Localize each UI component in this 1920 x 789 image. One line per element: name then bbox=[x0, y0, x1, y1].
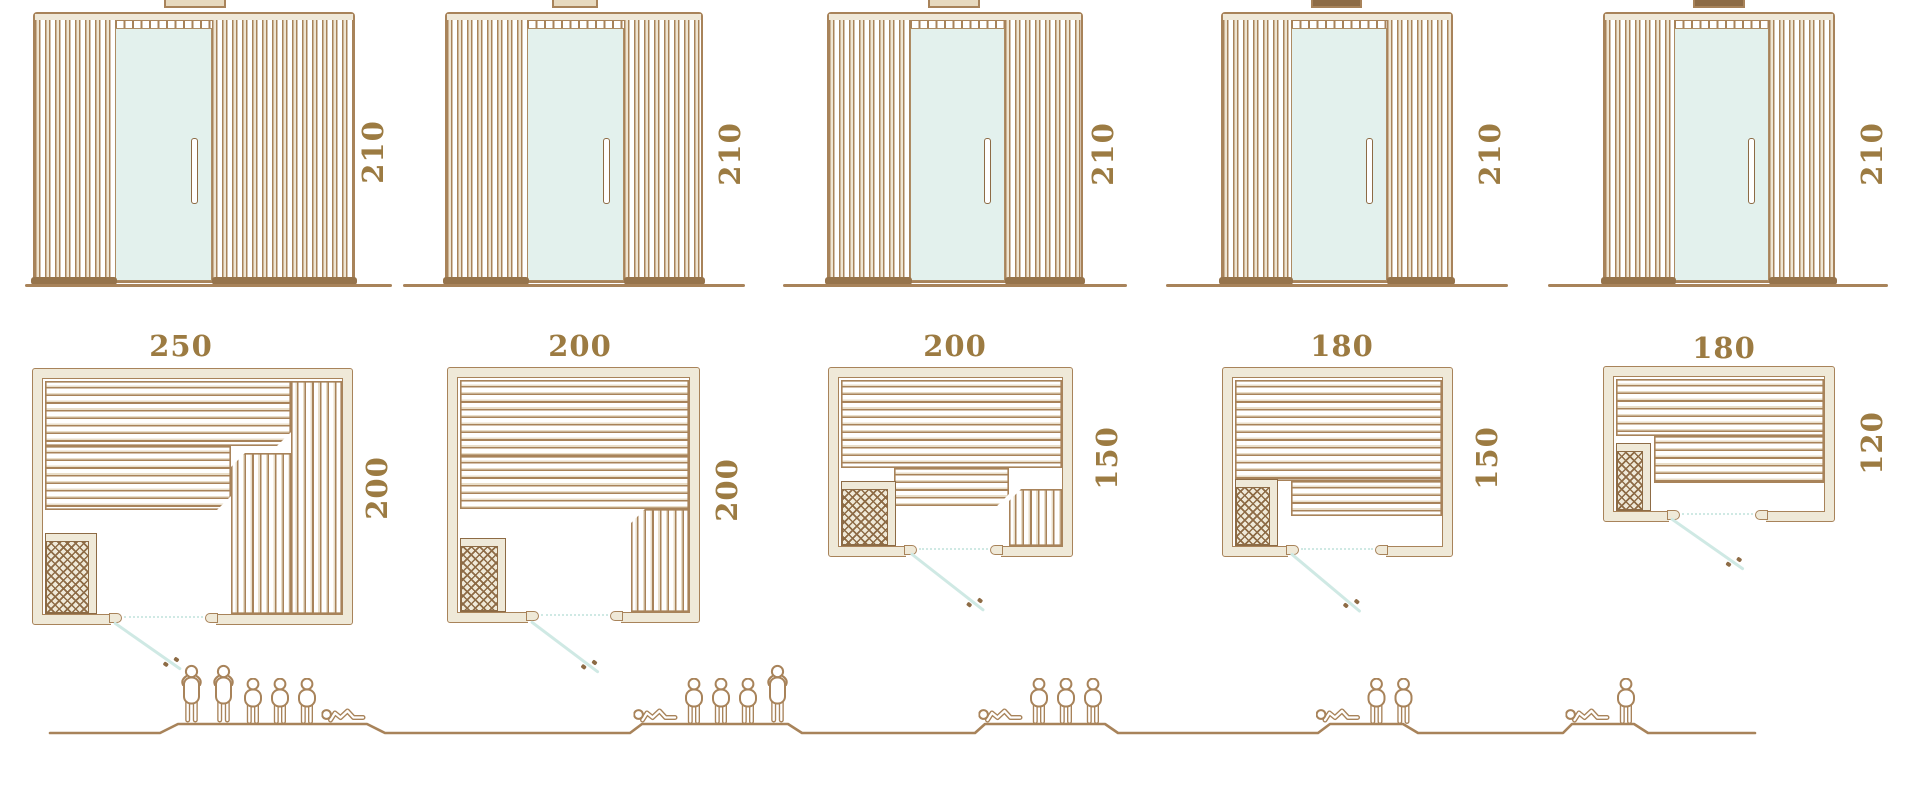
plan-top-view bbox=[447, 367, 700, 623]
capacity-group bbox=[1316, 678, 1416, 724]
person-lying-icon bbox=[1316, 704, 1362, 724]
elevation-height-label: 210 bbox=[1856, 104, 1888, 204]
heater-grill-icon bbox=[1236, 487, 1270, 545]
person-seated-icon bbox=[682, 678, 707, 724]
bench-top bbox=[1235, 380, 1442, 481]
door-swing-line bbox=[1290, 552, 1361, 612]
person-seated-icon bbox=[709, 678, 734, 724]
door-jamb-right bbox=[205, 613, 218, 623]
swing-handle-icon bbox=[966, 602, 972, 608]
bench-right-small bbox=[1009, 489, 1062, 546]
bench-right-small bbox=[631, 509, 689, 612]
person-standing-icon bbox=[763, 664, 793, 724]
ground-line-under-cabin bbox=[25, 284, 392, 287]
wall-slats-right bbox=[1387, 20, 1451, 281]
door-jamb-left bbox=[526, 611, 539, 621]
heater-grill-icon bbox=[461, 546, 498, 611]
swing-handle-icon bbox=[580, 664, 586, 670]
door-opening bbox=[1669, 508, 1766, 523]
person-seated-icon bbox=[1081, 678, 1106, 724]
person-seated-icon bbox=[241, 678, 266, 724]
door-handle bbox=[1748, 138, 1755, 204]
swing-handle-icon bbox=[173, 656, 179, 662]
person-lying-icon bbox=[979, 704, 1025, 724]
bench-top-lower bbox=[460, 456, 689, 509]
glass-door bbox=[1674, 28, 1769, 281]
glass-door bbox=[910, 28, 1005, 281]
plan-top-view bbox=[1603, 366, 1835, 522]
door-handle bbox=[191, 138, 198, 204]
swing-handle-icon bbox=[163, 661, 169, 667]
door-opening bbox=[111, 611, 216, 626]
roof-vent bbox=[1693, 0, 1745, 8]
bench-top-lower bbox=[45, 446, 231, 510]
door-threshold-dots bbox=[541, 614, 608, 616]
sauna-size-diagram: 210 250 200 bbox=[0, 0, 1920, 789]
bench-top bbox=[1616, 379, 1824, 436]
person-seated-icon bbox=[1391, 678, 1416, 724]
elevation-height-label: 210 bbox=[1087, 104, 1119, 204]
capacity-group bbox=[177, 664, 368, 724]
elevation-height-label: 210 bbox=[1474, 104, 1506, 204]
door-jamb-right bbox=[1755, 510, 1768, 520]
ground-line-under-cabin bbox=[1166, 284, 1508, 287]
plan-top-view bbox=[828, 367, 1073, 557]
capacity-group bbox=[1566, 678, 1639, 724]
glass-door bbox=[115, 28, 212, 281]
heater bbox=[460, 538, 506, 612]
roof-vent bbox=[552, 0, 598, 8]
plan-top-view bbox=[1222, 367, 1453, 557]
ground-line-under-cabin bbox=[783, 284, 1127, 287]
plan-depth-label: 150 bbox=[1471, 408, 1503, 508]
ground-line-under-cabin bbox=[403, 284, 745, 287]
bench-right-inner bbox=[231, 453, 291, 614]
heater-grill-icon bbox=[46, 541, 89, 613]
door-opening bbox=[528, 609, 621, 624]
plan-width-label: 250 bbox=[121, 330, 241, 362]
door-threshold-dots bbox=[919, 548, 988, 550]
wall-slats-left bbox=[1223, 20, 1291, 281]
roof-vent bbox=[1311, 0, 1362, 8]
person-seated-icon bbox=[295, 678, 320, 724]
swing-handle-icon bbox=[591, 659, 597, 665]
capacity-group bbox=[634, 664, 793, 724]
plan-depth-label: 120 bbox=[1856, 393, 1888, 493]
elevation-height-label: 210 bbox=[714, 104, 746, 204]
wall-slats-left bbox=[829, 20, 910, 281]
door-swing-line bbox=[113, 621, 182, 670]
roof-vent bbox=[928, 0, 980, 8]
swing-handle-icon bbox=[1354, 598, 1360, 604]
elevation-front-view bbox=[827, 12, 1083, 283]
bench-top-upper bbox=[45, 381, 291, 446]
person-seated-icon bbox=[268, 678, 293, 724]
plan-top-view bbox=[32, 368, 353, 625]
elevation-front-view bbox=[445, 12, 703, 283]
bench-top bbox=[841, 380, 1062, 468]
plan-depth-label: 150 bbox=[1091, 408, 1123, 508]
wall-slats-right bbox=[212, 20, 353, 281]
glass-door bbox=[527, 28, 624, 281]
person-seated-icon bbox=[1027, 678, 1052, 724]
door-threshold-dots bbox=[1301, 548, 1373, 550]
swing-handle-icon bbox=[977, 597, 983, 603]
door-opening bbox=[1288, 543, 1386, 558]
door-swing-line bbox=[1670, 517, 1744, 570]
elevation-front-view bbox=[33, 12, 355, 283]
bench-right-outer bbox=[291, 381, 342, 614]
wall-slats-left bbox=[447, 20, 527, 281]
plan-depth-label: 200 bbox=[711, 440, 743, 540]
heater bbox=[45, 533, 97, 614]
person-lying-icon bbox=[322, 704, 368, 724]
swing-handle-icon bbox=[1343, 602, 1349, 608]
swing-handle-icon bbox=[1736, 556, 1742, 562]
wall-slats-left bbox=[1605, 20, 1674, 281]
plan-width-label: 180 bbox=[1664, 332, 1784, 364]
person-seated-icon bbox=[1614, 678, 1639, 724]
person-lying-icon bbox=[634, 704, 680, 724]
ground-line-under-cabin bbox=[1548, 284, 1888, 287]
heater bbox=[1235, 479, 1278, 546]
wall-slats-right bbox=[1769, 20, 1833, 281]
plan-width-label: 180 bbox=[1282, 330, 1402, 362]
bench-top-upper bbox=[460, 380, 689, 456]
door-handle bbox=[1366, 138, 1373, 204]
plan-depth-label: 200 bbox=[361, 438, 393, 538]
bench-lower-tier bbox=[894, 468, 1009, 506]
capacity-group bbox=[979, 678, 1106, 724]
door-swing-line bbox=[530, 620, 599, 673]
heater-grill-icon bbox=[842, 489, 888, 545]
elevation-front-view bbox=[1221, 12, 1453, 283]
door-threshold-dots bbox=[1682, 513, 1753, 515]
door-jamb-right bbox=[990, 545, 1003, 555]
swing-handle-icon bbox=[1725, 561, 1731, 567]
wall-slats-left bbox=[35, 20, 115, 281]
elevation-height-label: 210 bbox=[357, 102, 389, 202]
plan-width-label: 200 bbox=[895, 330, 1015, 362]
door-opening bbox=[906, 543, 1001, 558]
bench-lower-tier bbox=[1654, 436, 1824, 483]
person-seated-icon bbox=[1054, 678, 1079, 724]
wall-slats-right bbox=[1005, 20, 1081, 281]
heater bbox=[841, 481, 896, 546]
elevation-front-view bbox=[1603, 12, 1835, 283]
plan-width-label: 200 bbox=[520, 330, 640, 362]
door-jamb-right bbox=[1375, 545, 1388, 555]
person-standing-icon bbox=[209, 664, 239, 724]
heater-grill-icon bbox=[1617, 451, 1643, 510]
door-handle bbox=[603, 138, 610, 204]
person-seated-icon bbox=[736, 678, 761, 724]
door-swing-line bbox=[910, 552, 985, 611]
heater bbox=[1616, 443, 1651, 511]
person-standing-icon bbox=[177, 664, 207, 724]
glass-door bbox=[1291, 28, 1387, 281]
bench-lower-tier bbox=[1291, 481, 1442, 516]
person-seated-icon bbox=[1364, 678, 1389, 724]
roof-vent bbox=[164, 0, 226, 8]
wall-slats-right bbox=[624, 20, 701, 281]
door-threshold-dots bbox=[124, 616, 203, 618]
person-lying-icon bbox=[1566, 704, 1612, 724]
door-jamb-right bbox=[610, 611, 623, 621]
door-handle bbox=[984, 138, 991, 204]
